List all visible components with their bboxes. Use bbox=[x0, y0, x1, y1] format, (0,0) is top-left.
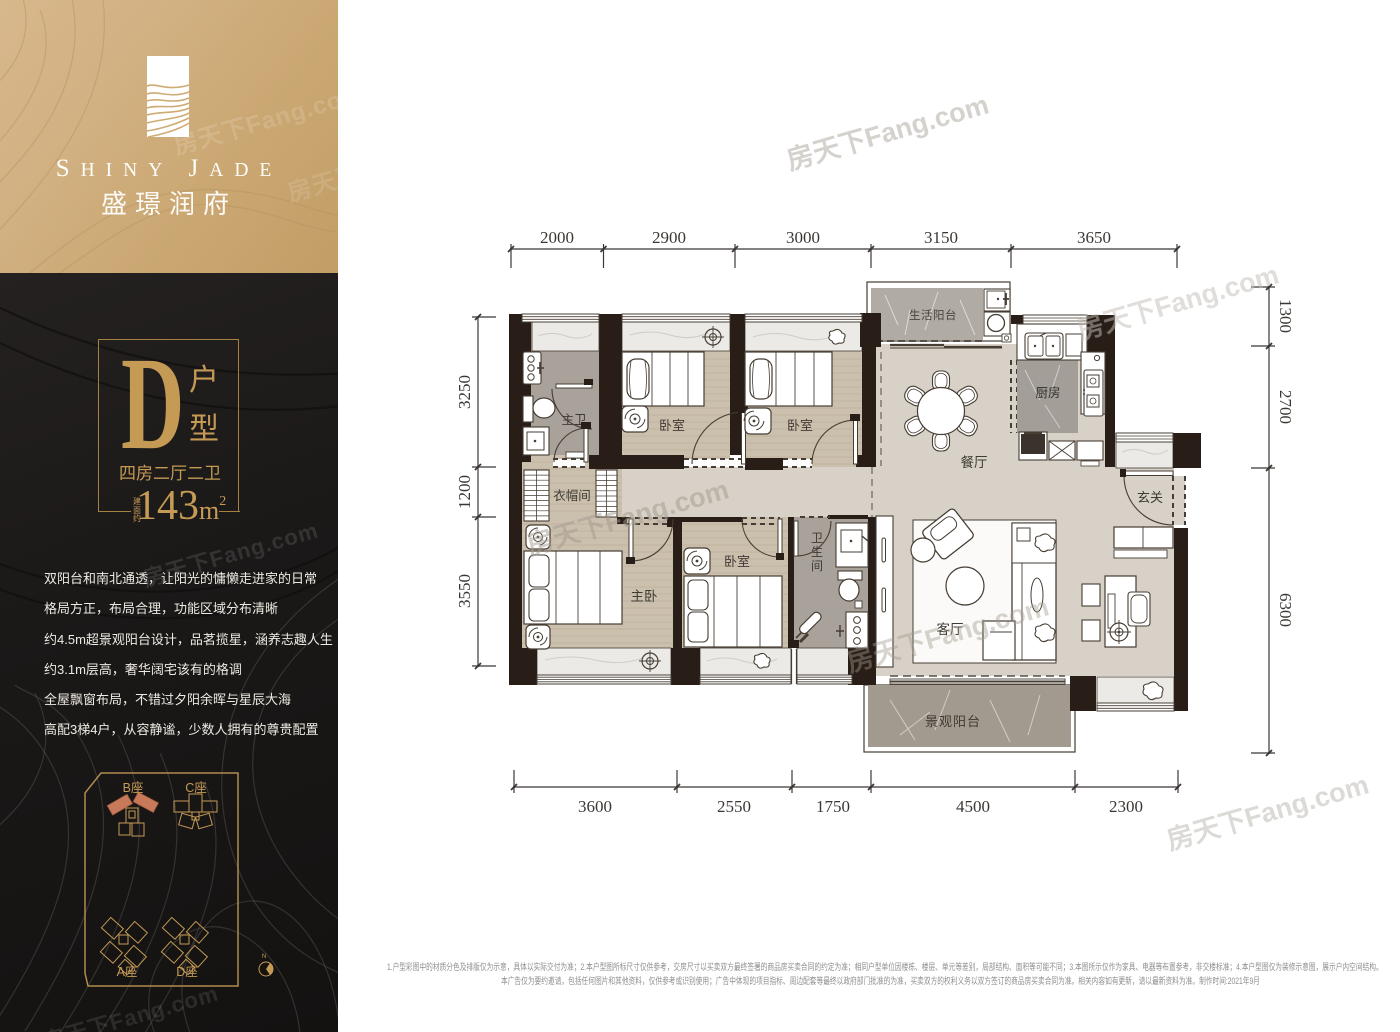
svg-text:3550: 3550 bbox=[455, 574, 474, 608]
svg-text:房天下Fang.com: 房天下Fang.com bbox=[1073, 259, 1282, 345]
svg-text:B座: B座 bbox=[123, 780, 144, 795]
svg-text:1200: 1200 bbox=[455, 475, 474, 509]
svg-text:3150: 3150 bbox=[924, 228, 958, 247]
svg-text:主卧: 主卧 bbox=[631, 589, 658, 604]
svg-text:盛璟润府: 盛璟润府 bbox=[101, 189, 237, 219]
svg-text:房天下Fang.com: 房天下Fang.com bbox=[783, 89, 992, 175]
svg-text:2000: 2000 bbox=[540, 228, 574, 247]
svg-text:3650: 3650 bbox=[1077, 228, 1111, 247]
svg-text:玄关: 玄关 bbox=[1137, 490, 1163, 505]
svg-text:2700: 2700 bbox=[1276, 390, 1295, 424]
svg-text:N: N bbox=[262, 954, 266, 960]
svg-text:2550: 2550 bbox=[717, 797, 751, 816]
svg-text:房天下Fang.com: 房天下Fang.com bbox=[1163, 769, 1372, 855]
svg-text:6300: 6300 bbox=[1276, 593, 1295, 627]
svg-text:1750: 1750 bbox=[816, 797, 850, 816]
svg-text:卧室: 卧室 bbox=[787, 418, 813, 433]
svg-text:景观阳台: 景观阳台 bbox=[925, 714, 981, 729]
svg-text:餐厅: 餐厅 bbox=[961, 455, 988, 470]
svg-text:3600: 3600 bbox=[578, 797, 612, 816]
svg-text:4500: 4500 bbox=[956, 797, 990, 816]
svg-text:卧室: 卧室 bbox=[659, 418, 685, 433]
svg-text:3000: 3000 bbox=[786, 228, 820, 247]
svg-text:衣帽间: 衣帽间 bbox=[553, 488, 591, 503]
svg-text:D座: D座 bbox=[176, 964, 198, 979]
svg-text:间: 间 bbox=[811, 559, 823, 573]
svg-text:生活阳台: 生活阳台 bbox=[909, 308, 957, 322]
svg-text:厨房: 厨房 bbox=[1035, 385, 1060, 400]
svg-text:C座: C座 bbox=[185, 780, 207, 795]
svg-text:卫: 卫 bbox=[811, 531, 823, 545]
svg-text:生: 生 bbox=[811, 545, 823, 559]
svg-text:A座: A座 bbox=[117, 964, 138, 979]
svg-text:2900: 2900 bbox=[652, 228, 686, 247]
svg-text:3250: 3250 bbox=[455, 375, 474, 409]
svg-text:2300: 2300 bbox=[1109, 797, 1143, 816]
svg-text:卧室: 卧室 bbox=[724, 554, 750, 569]
svg-text:SHINY JADE: SHINY JADE bbox=[56, 155, 283, 182]
svg-text:1300: 1300 bbox=[1276, 299, 1295, 333]
